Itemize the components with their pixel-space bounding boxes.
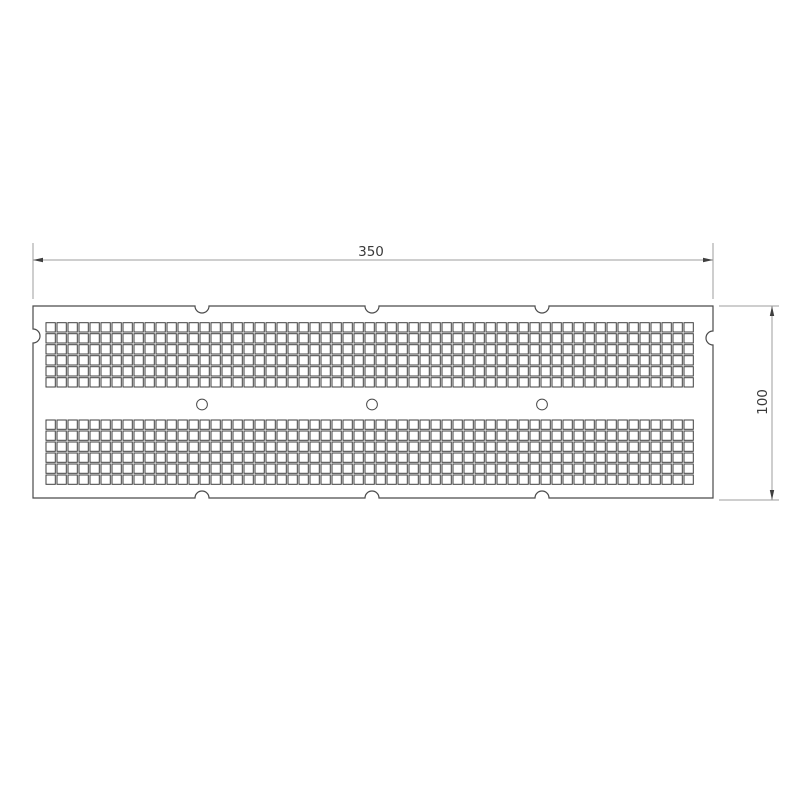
width-dimension: 350 — [33, 243, 713, 299]
drawing-svg: 350 100 — [0, 0, 800, 800]
height-dim-label: 100 — [755, 389, 771, 415]
height-dimension: 100 — [719, 306, 779, 500]
drawing-canvas: 350 100 — [0, 0, 800, 800]
plate-outline — [33, 306, 713, 498]
width-dim-label: 350 — [358, 244, 384, 260]
